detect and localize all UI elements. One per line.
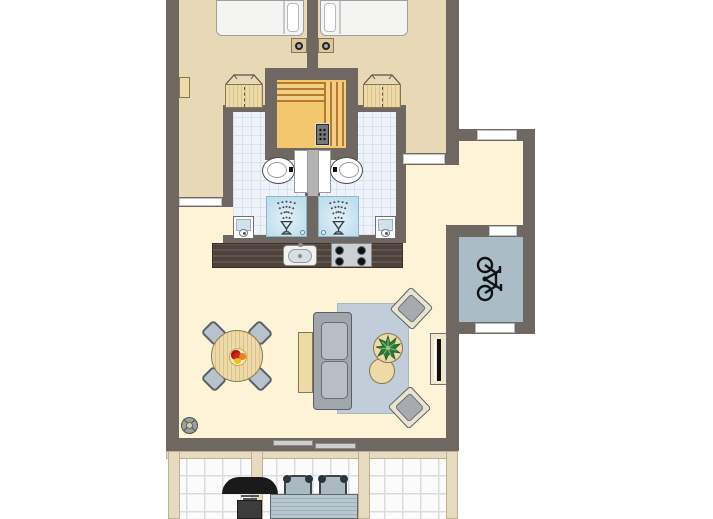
coffee-table xyxy=(373,333,403,363)
window-storage xyxy=(475,323,515,333)
wall-bathroom-right-east xyxy=(396,105,406,242)
wardrobe-left-doors-icon xyxy=(225,74,263,85)
door-storage xyxy=(489,226,517,236)
shower-left xyxy=(266,196,307,237)
bed-right xyxy=(320,0,408,36)
bed-left xyxy=(216,0,304,36)
barbecue-grate xyxy=(241,495,259,497)
floor-plan xyxy=(0,0,713,519)
sofa-cushion xyxy=(321,361,348,399)
barbecue-lid xyxy=(222,477,278,494)
door-bedroom-left xyxy=(179,198,222,206)
toilet-cistern-left xyxy=(294,150,308,193)
plumbing-shaft xyxy=(308,150,318,196)
wall-bedroom-divider xyxy=(307,0,318,80)
lamp-icon xyxy=(295,42,303,50)
dining-table xyxy=(211,330,263,382)
wall-storage-left xyxy=(446,237,459,322)
burner xyxy=(357,257,366,266)
fruit-bowl xyxy=(229,348,247,366)
kitchen-hob xyxy=(331,243,372,267)
shower-drain xyxy=(321,230,326,235)
sofa-cushion xyxy=(321,322,348,360)
terrace-top-rail xyxy=(166,451,458,459)
sauna-heater xyxy=(316,124,329,145)
wall-left-exterior xyxy=(166,0,179,451)
sliding-door-panel xyxy=(273,440,313,446)
wardrobe-left xyxy=(225,84,263,108)
kitchen-sink xyxy=(283,245,317,266)
door-bedroom-right xyxy=(403,154,445,164)
shower-right xyxy=(318,196,359,237)
burner xyxy=(335,257,344,266)
nightstand-right xyxy=(318,38,334,53)
wardrobe-right-doors-icon xyxy=(363,74,401,85)
shower-drain xyxy=(300,230,305,235)
wall-bathroom-left-west xyxy=(223,105,233,207)
terrace-post xyxy=(168,451,180,519)
burner xyxy=(335,246,344,255)
plant-icon xyxy=(375,335,401,361)
toilet-right xyxy=(330,157,363,184)
terrace-post xyxy=(446,451,458,519)
sliding-door-panel xyxy=(315,443,356,449)
terrace-post xyxy=(358,451,370,519)
washbasin-right xyxy=(375,216,396,239)
washbasin-left xyxy=(233,216,254,239)
patio-table xyxy=(270,494,358,519)
pillow xyxy=(287,3,299,32)
sideboard xyxy=(298,332,313,393)
nightstand-left xyxy=(291,38,307,53)
kitchen-faucet xyxy=(298,243,303,247)
tv-icon xyxy=(437,339,441,381)
sofa xyxy=(313,312,352,410)
bicycle-icon xyxy=(476,256,506,302)
lamp-icon xyxy=(322,42,330,50)
pillow xyxy=(324,3,336,32)
barbecue-body xyxy=(237,500,262,519)
tv-cabinet xyxy=(430,333,447,385)
wall-shelf xyxy=(179,77,190,98)
burner xyxy=(357,246,366,255)
wardrobe-right xyxy=(363,84,401,108)
wall-living-east xyxy=(446,322,459,451)
front-door xyxy=(477,130,517,140)
floor-lamp xyxy=(181,417,198,434)
toilet-left xyxy=(262,157,295,184)
